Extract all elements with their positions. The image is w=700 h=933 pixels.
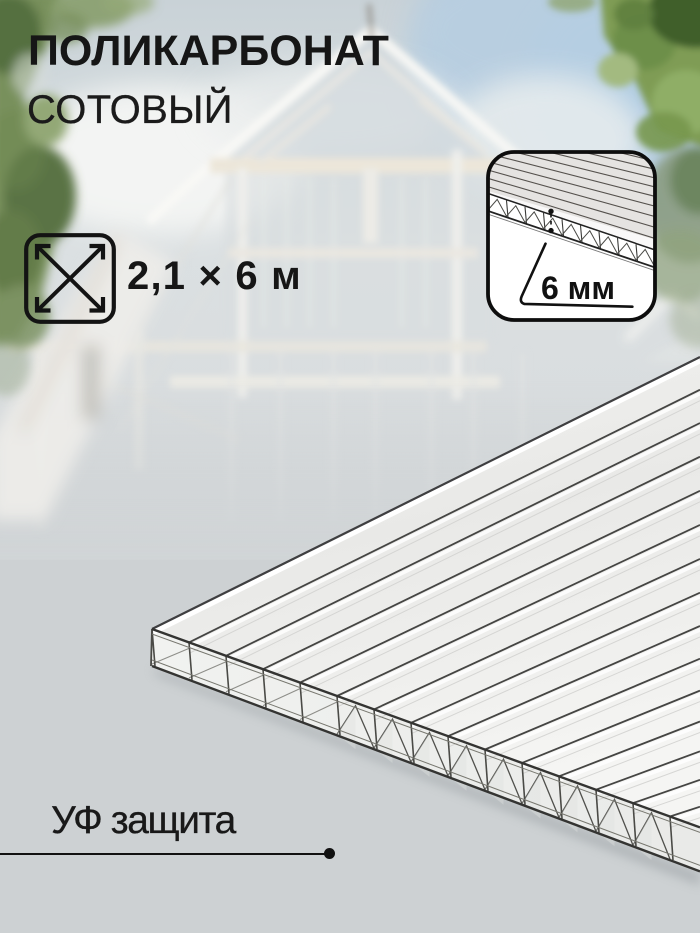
svg-text:6 мм: 6 мм	[541, 270, 615, 306]
